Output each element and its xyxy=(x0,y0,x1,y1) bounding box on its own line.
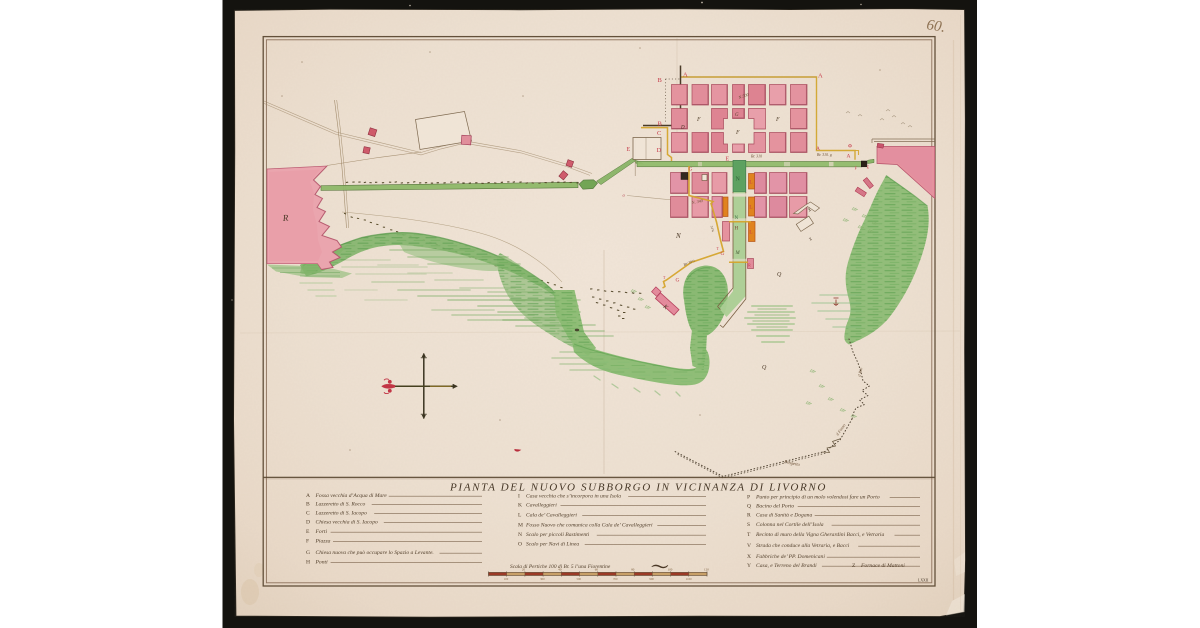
svg-text:1100: 1100 xyxy=(686,577,692,581)
svg-text:A: A xyxy=(847,154,851,160)
svg-text:I: I xyxy=(518,494,520,500)
svg-text:E: E xyxy=(627,147,631,153)
svg-text:G: G xyxy=(689,167,693,173)
svg-text:E: E xyxy=(867,165,870,170)
svg-text:Q: Q xyxy=(762,365,767,371)
svg-text:60: 60 xyxy=(595,568,599,572)
svg-text:B: B xyxy=(306,502,310,508)
svg-text:Cala de’ Cavalleggieri: Cala de’ Cavalleggieri xyxy=(526,513,577,519)
svg-text:Casa, e Terreno del Brandi: Casa, e Terreno del Brandi xyxy=(756,563,817,569)
svg-text:Scalo per Navi di Linea: Scalo per Navi di Linea xyxy=(526,542,579,548)
svg-text:F: F xyxy=(775,117,780,123)
svg-text:S: S xyxy=(747,522,750,528)
svg-text:60.: 60. xyxy=(925,17,946,36)
svg-text:Y: Y xyxy=(747,563,751,569)
svg-text:Br. 310. g: Br. 310. g xyxy=(817,153,832,157)
svg-text:C: C xyxy=(306,511,310,517)
svg-text:N: N xyxy=(675,232,681,240)
svg-text:100: 100 xyxy=(504,577,509,581)
svg-text:100: 100 xyxy=(668,568,673,572)
svg-text:B: B xyxy=(658,77,663,84)
svg-text:F: F xyxy=(696,117,701,123)
svg-text:R: R xyxy=(748,263,751,268)
svg-text:40: 40 xyxy=(558,568,562,572)
svg-text:G: G xyxy=(735,113,739,118)
svg-text:G: G xyxy=(721,251,725,257)
svg-text:Fornace di Mattoni: Fornace di Mattoni xyxy=(860,563,905,569)
svg-text:K: K xyxy=(518,503,522,509)
svg-text:Casa di Sanità e Dogana: Casa di Sanità e Dogana xyxy=(756,513,812,519)
svg-text:B: B xyxy=(658,121,663,128)
svg-text:Cavalleggieri: Cavalleggieri xyxy=(526,503,557,509)
svg-text:N: N xyxy=(736,177,741,183)
svg-text:Chiesa vecchia di S. Iacopo: Chiesa vecchia di S. Iacopo xyxy=(316,520,378,526)
svg-text:Bacino del Porto: Bacino del Porto xyxy=(756,504,794,510)
svg-text:Fabbriche de’ PP. Domenicani: Fabbriche de’ PP. Domenicani xyxy=(755,554,825,560)
svg-text:E: E xyxy=(306,529,310,535)
svg-text:900: 900 xyxy=(649,577,654,581)
svg-text:A: A xyxy=(816,146,820,152)
svg-text:M: M xyxy=(735,251,741,256)
svg-text:20: 20 xyxy=(522,568,526,572)
svg-text:Chiesa nuova che può occupare: Chiesa nuova che può occupare lo Spazio … xyxy=(316,550,434,556)
svg-text:F: F xyxy=(306,539,309,545)
svg-text:D: D xyxy=(680,126,685,131)
svg-text:F: F xyxy=(735,130,740,136)
svg-text:Br. 310: Br. 310 xyxy=(751,154,762,158)
svg-text:Z: Z xyxy=(852,563,856,569)
svg-text:O: O xyxy=(518,542,522,548)
svg-text:Colonna nel Cortile dell’Isola: Colonna nel Cortile dell’Isola xyxy=(756,522,824,528)
svg-text:M: M xyxy=(518,523,523,529)
svg-text:A: A xyxy=(818,73,823,80)
svg-text:G: G xyxy=(306,550,310,556)
svg-text:T: T xyxy=(747,532,751,538)
svg-text:A: A xyxy=(306,493,310,499)
svg-text:E: E xyxy=(726,157,730,163)
svg-text:Scalo per piccoli Bastimenti: Scalo per piccoli Bastimenti xyxy=(526,532,590,538)
svg-text:D: D xyxy=(657,147,662,154)
svg-text:D: D xyxy=(306,520,310,526)
svg-text:N: N xyxy=(735,216,739,221)
svg-text:700: 700 xyxy=(613,577,618,581)
svg-text:A: A xyxy=(683,72,688,79)
svg-text:C: C xyxy=(657,130,661,137)
svg-text:P: P xyxy=(747,495,750,501)
svg-text:Lazzeretto di S. Iacopo: Lazzeretto di S. Iacopo xyxy=(315,511,368,517)
svg-text:Casa vecchia che s’incorpora i: Casa vecchia che s’incorpora in una Isol… xyxy=(526,494,621,500)
svg-text:Φ: Φ xyxy=(848,144,852,150)
svg-text:300: 300 xyxy=(540,577,545,581)
svg-text:V: V xyxy=(747,543,751,549)
svg-text:Lazzeretto di S. Rocco: Lazzeretto di S. Rocco xyxy=(315,502,366,508)
svg-text:Piazza: Piazza xyxy=(315,539,331,545)
svg-text:Fossa vecchia d’Acqua di Mare: Fossa vecchia d’Acqua di Mare xyxy=(315,493,388,499)
svg-text:80: 80 xyxy=(631,568,635,572)
svg-text:Ponti: Ponti xyxy=(315,560,329,566)
svg-text:Forti: Forti xyxy=(315,529,328,535)
svg-text:Punto per principio di un molo: Punto per principio di un molo volendosi… xyxy=(755,494,880,501)
svg-text:Q: Q xyxy=(777,272,782,278)
svg-text:R: R xyxy=(747,513,751,519)
svg-text:N: N xyxy=(518,532,522,538)
svg-text:H: H xyxy=(306,560,310,566)
svg-text:120: 120 xyxy=(704,568,709,572)
svg-text:H: H xyxy=(735,227,739,232)
svg-text:Q: Q xyxy=(747,504,751,510)
svg-text:G: G xyxy=(676,278,680,284)
svg-text:X: X xyxy=(747,554,751,560)
svg-text:R: R xyxy=(281,213,289,223)
svg-text:Recinto di muro della Vigna Gh: Recinto di muro della Vigna Gherardini B… xyxy=(755,532,884,538)
svg-text:Fosso Nuovo che comunica colla: Fosso Nuovo che comunica colla Cala de’ … xyxy=(525,523,653,529)
svg-text:LXXII: LXXII xyxy=(918,579,929,583)
svg-text:Strada che conduce alla Vetrar: Strada che conduce alla Vetraria, e Bacc… xyxy=(756,543,850,549)
svg-text:500: 500 xyxy=(577,577,582,581)
svg-text:PIANTA DEL NUOVO SUBBORGO IN V: PIANTA DEL NUOVO SUBBORGO IN VICINANZA D… xyxy=(449,483,827,494)
svg-text:L: L xyxy=(518,513,522,519)
